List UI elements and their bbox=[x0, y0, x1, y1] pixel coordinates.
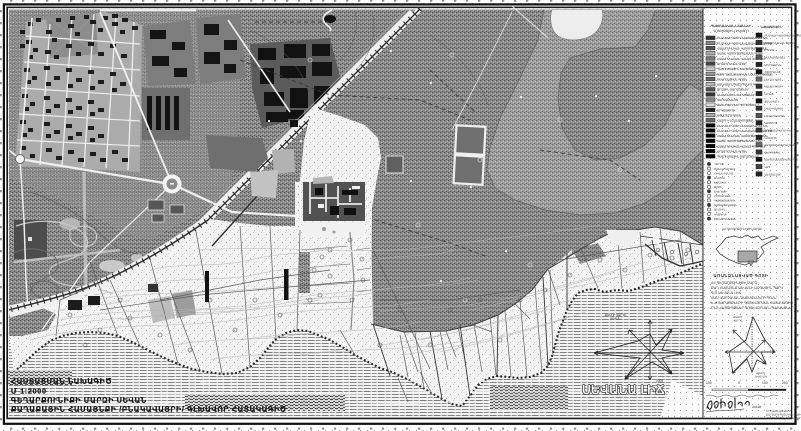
svg-text:ԱՌԱՆՁՆԱՑՎԱԾ ԳՈՏԻ: ԱՌԱՆՁՆԱՑՎԱԾ ԳՈՏԻ bbox=[714, 273, 769, 278]
svg-text:ԳԵՂԱՐՔՈՒՆԻՔԻ ՄԱՐԶԻ ՍԵՎԱՆ: ԳԵՂԱՐՔՈՒՆԻՔԻ ՄԱՐԶԻ ՍԵՎԱՆ bbox=[11, 396, 147, 405]
svg-text:ՈՒԺԸ Մ/Վ: ՈՒԺԸ Մ/Վ bbox=[755, 374, 769, 378]
svg-text:ՔԱՄՈՒ: ՔԱՄՈՒ bbox=[733, 315, 743, 319]
svg-text:2004Թ: 2004Թ bbox=[752, 405, 762, 409]
svg-text:200: 200 bbox=[782, 381, 788, 385]
svg-text:ՓՈՍՏ: ՓՈՍՏ bbox=[714, 185, 722, 189]
svg-text:ՀՅՈՒՐԱՆՈՑ: ՀՅՈՒՐԱՆՈՑ bbox=[765, 70, 782, 74]
svg-text:ԿՈՅՈՒՂԻ: ԿՈՅՈՒՂԻ bbox=[714, 212, 727, 216]
svg-text:ՊԱՅՄԱՆԱԿԱՆ ՆՇԱՆՆԵՐ: ՊԱՅՄԱՆԱԿԱՆ ՆՇԱՆՆԵՐ bbox=[711, 24, 752, 28]
svg-text:ՀԱՍՏԱՏՄԱՆ ՆԱԽԱԳԻԾ: ՀԱՍՏԱՏՄԱՆ ՆԱԽԱԳԻԾ bbox=[11, 377, 112, 386]
svg-text:ՀՀ ԳԵՂԱՐՔՈՒՆԻՔԻ ՄԱՐԶԸ: ՀՀ ԳԵՂԱՐՔՈՒՆԻՔԻ ՄԱՐԶԸ bbox=[722, 227, 762, 231]
svg-text:ԵՐԵՎԱՆՆԱԽԱԳԻԾ: ԵՐԵՎԱՆՆԱԽԱԳԻԾ bbox=[766, 409, 792, 413]
svg-text:ԳԱԶԱՄԱՏԱԿԱՐԱՐՈՒՄ: ԳԱԶԱՄԱՏԱԿԱՐԱՐՈՒՄ bbox=[765, 143, 796, 147]
svg-text:ՄԱՆԿԱՊԱՐՏԵԶ: ՄԱՆԿԱՊԱՐՏԵԶ bbox=[765, 56, 787, 60]
svg-text:ՆԱՎԱՀԱՆԳԻՍՏ: ՆԱՎԱՀԱՆԳԻՍՏ bbox=[765, 114, 786, 118]
svg-text:ՍԵՎԱՆԱ ԼԻՃ: ՍԵՎԱՆԱ ԼԻՃ bbox=[582, 383, 665, 397]
svg-text:ՋՐՄՈՒՂ: ՋՐՄՈՒՂ bbox=[714, 208, 726, 212]
svg-text:ԳՈՅՈՒԹՅՈՒՆ ՈՒՆԵՑՈՂ: ԳՈՅՈՒԹՅՈՒՆ ՈՒՆԵՑՈՂ bbox=[713, 29, 749, 33]
svg-text:ՔԱՄՈՒ: ՔԱՄՈՒ bbox=[756, 371, 766, 375]
svg-text:ԿԱՆԱՉ ԳՈՏԻ: ԿԱՆԱՉ ԳՈՏԻ bbox=[765, 85, 782, 89]
svg-text:ԱՐՏԱԴՐԱԿԱՆ ԳՈՏԻ: ԱՐՏԱԴՐԱԿԱՆ ԳՈՏԻ bbox=[717, 62, 747, 66]
svg-text:ՋԵՌՈՒՑՈՒՄ: ՋԵՌՈՒՑՈՒՄ bbox=[765, 150, 782, 154]
svg-text:ԱՓԱՄԵՐՁ ԳՈՏԻ: ԱՓԱՄԵՐՁ ԳՈՏԻ bbox=[717, 113, 741, 117]
svg-text:ՔԱՂ ՀԱՄԱՅՆՔ ՍԵՎԱՆԻ ԱԶԳԱՅԻՆ ՊԱՐ: ՔԱՂ ՀԱՄԱՅՆՔ ՍԵՎԱՆԻ ԱԶԳԱՅԻՆ ՊԱՐԿ bbox=[711, 286, 783, 290]
svg-text:ԱԿՈՒՄԲ: ԱԿՈՒՄԲ bbox=[714, 176, 725, 180]
svg-text:ՌԵԿՐԵԱՑԻՈՆ ԳՈՏԻ: ՌԵԿՐԵԱՑԻՈՆ ԳՈՏԻ bbox=[717, 77, 746, 81]
svg-text:ՃԱՐՏԱՐԱՊԵՏԱԿԱՆ ԲԱԺԻՆ: ՃԱՐՏԱՐԱՊԵՏԱԿԱՆ ԲԱԺԻՆ bbox=[766, 412, 801, 416]
svg-text:ՊԱՀՈՒՍՏԱՅԻՆ ՏԱՐԱԾՔՆԵՐ: ՊԱՀՈՒՍՏԱՅԻՆ ՏԱՐԱԾՔՆԵՐ bbox=[717, 67, 759, 71]
svg-text:ՀԱՍԱՐԱԿԱԿԱՆ ՕԲՅԵԿՏ: ՀԱՍԱՐԱԿԱԿԱՆ ՕԲՅԵԿՏ bbox=[765, 41, 797, 45]
svg-text:ՆԱԽԱԳԾՎՈՂ: ՆԱԽԱԳԾՎՈՂ bbox=[759, 25, 782, 29]
svg-text:ՀԱՄ ՎԱՐՉԱԿԱՆ ՍԱՀՄԱՆՆԵՐԻ ՊԼԱՆ: ՀԱՄ ՎԱՐՉԱԿԱՆ ՍԱՀՄԱՆՆԵՐԻ ՊԼԱՆ bbox=[711, 296, 777, 300]
svg-text:ԱՐՏԱԴՐԱԿԱՆ ԳՈՏԻ: ԱՐՏԱԴՐԱԿԱՆ ԳՈՏԻ bbox=[717, 150, 747, 154]
svg-text:ՋՐԱՅԻՆ ՏԱՐԱԾՔՆԵՐ: ՋՐԱՅԻՆ ՏԱՐԱԾՔՆԵՐ bbox=[717, 88, 749, 92]
svg-text:ԿՈՅՈՒՂԻ: ԿՈՅՈՒՂԻ bbox=[765, 136, 778, 140]
svg-text:Մ 1:2000: Մ 1:2000 bbox=[11, 387, 47, 396]
svg-text:ՍԱՆԻՏԱՐԱՊԱՇՏՊԱՆԻՉ ԳՈՏԻ: ՍԱՆԻՏԱՐԱՊԱՇՏՊԱՆԻՉ ԳՈՏԻ bbox=[717, 83, 761, 87]
svg-text:ԱՎՏՈԿԱՆԳԱՌ: ԱՎՏՈԿԱՆԳԱՌ bbox=[765, 107, 785, 111]
svg-text:ՀԻՎԱՆԴԱՆՈՑ: ՀԻՎԱՆԴԱՆՈՑ bbox=[714, 171, 734, 175]
svg-text:ԷԼԵԿՏՐԱՄԱՏԱԿԱՐԱՐՈՒՄ: ԷԼԵԿՏՐԱՄԱՏԱԿԱՐԱՐՈՒՄ bbox=[765, 158, 800, 162]
svg-text:ԴՊՐՈՑ: ԴՊՐՈՑ bbox=[714, 162, 725, 166]
svg-text:ԵԿԵՂԵՑԻ: ԵԿԵՂԵՑԻ bbox=[714, 190, 727, 194]
svg-text:ՀՈՒՇԱՐՁԱՆ: ՀՈՒՇԱՐՁԱՆ bbox=[714, 194, 732, 198]
svg-text:ՔԱՂԱՔԱՅԻՆ ՀԱՄԱՅՆՔԻ /ԲՆԱԿԱՎԱՅՐԻ: ՔԱՂԱՔԱՅԻՆ ՀԱՄԱՅՆՔԻ /ԲՆԱԿԱՎԱՅՐԻ/ ԳԼԽԱՎՈՐ … bbox=[11, 405, 287, 414]
svg-text:ԴՊՐՈՑ: ԴՊՐՈՑ bbox=[765, 48, 775, 52]
svg-text:ՊԱՀՈՒՍՏԱՅԻՆ ՏԱՐԱԾՔՆԵՐ: ՊԱՀՈՒՍՏԱՅԻՆ ՏԱՐԱԾՔՆԵՐ bbox=[717, 155, 759, 159]
svg-text:ԸՆԴ ՀԱՏՈՒՅԹՆԵՐ ԳՈՏԵՎՈՐՄԱՆ ՊԱՀԱ: ԸՆԴ ՀԱՏՈՒՅԹՆԵՐ ԳՈՏԵՎՈՐՄԱՆ ՊԱՀԱՆՋՆԵՐ bbox=[711, 306, 794, 310]
svg-text:100: 100 bbox=[706, 381, 712, 385]
svg-text:ՄԱՐԶԱԴԱՇՏ: ՄԱՐԶԱԴԱՇՏ bbox=[765, 77, 782, 81]
svg-text:ԿԱԹՍԱՅԱՏՈՒՆ: ԿԱԹՍԱՅԱՏՈՒՆ bbox=[714, 199, 736, 203]
svg-text:100: 100 bbox=[762, 381, 768, 385]
svg-text:ՀԱՍՏԻՔԱՅԻՆ ՓԱՍՏԱԹՈՒՂԹ: ՀԱՍՏԻՔԱՅԻՆ ՓԱՍՏԱԹՈՒՂԹ bbox=[766, 416, 801, 420]
svg-text:ԱՌՈՂՋԱՐԱՆ: ԱՌՈՂՋԱՐԱՆ bbox=[765, 63, 783, 67]
svg-text:ՎԱՐԴԸ: ՎԱՐԴԸ bbox=[733, 318, 743, 322]
svg-text:ՀՀ ԳԵՂԱՐՔՈՒՆԻՔԻ ՄԱՐԶ: ՀՀ ԳԵՂԱՐՔՈՒՆԻՔԻ ՄԱՐԶ bbox=[711, 281, 758, 285]
svg-text:ԳԱԶԱԼՑԱԿԱՅԱՆ: ԳԱԶԱԼՑԱԿԱՅԱՆ bbox=[714, 203, 738, 207]
svg-text:ԱՆՏԱՌԱՅԻՆ ՏԱՐԱԾՔՆԵՐ: ԱՆՏԱՌԱՅԻՆ ՏԱՐԱԾՔՆԵՐ bbox=[717, 93, 755, 97]
svg-text:ՍԱՀՄԱՆՆԵՐ: ՍԱՀՄԱՆՆԵՐ bbox=[765, 172, 782, 176]
svg-text:ԳԵՐԵԶՄԱՆՈՑ: ԳԵՐԵԶՄԱՆՈՑ bbox=[717, 98, 739, 102]
svg-text:ԽԱՌԸ ԿԱՌՈՒՑԱՊԱՏՄԱՆ ԳՈՏԻ: ԽԱՌԸ ԿԱՌՈՒՑԱՊԱՏՄԱՆ ԳՈՏԻ bbox=[717, 52, 763, 56]
svg-text:0: 0 bbox=[738, 381, 740, 385]
svg-text:ԽԱՆՈՒԹ: ԽԱՆՈՒԹ bbox=[714, 180, 727, 184]
svg-text:ՃԱՆԱՊԱՐՀՆԵՐ ՓՈՂՈՑՆԵՐ: ՃԱՆԱՊԱՐՀՆԵՐ ՓՈՂՈՑՆԵՐ bbox=[717, 103, 757, 107]
svg-text:Ե-Ժ ՏԱՐԱԾՔՆԵՐԻ ԳՈՏԵՎՈՐՄԱՆ ՀԱՏԱ: Ե-Ժ ՏԱՐԱԾՔՆԵՐԻ ԳՈՏԵՎՈՐՄԱՆ ՀԱՏԱԿԱԳԻԾ bbox=[711, 301, 793, 305]
svg-text:ԿԱՊ: ԿԱՊ bbox=[765, 165, 772, 169]
svg-text:ԲՆԱԿԵԼԻ ԿԱՌՈՒՑԱՊԱՏՈՒՄ: ԲՆԱԿԵԼԻ ԿԱՌՈՒՑԱՊԱՏՈՒՄ bbox=[765, 34, 801, 38]
svg-text:ՃԱՆԱՊԱՐՀ: ՃԱՆԱՊԱՐՀ bbox=[765, 99, 780, 103]
svg-text:ԼՈՂԱՓ: ԼՈՂԱՓ bbox=[765, 92, 775, 96]
svg-text:ԷԼԵԿՏՐԱԿԱՅԱՆ: ԷԼԵԿՏՐԱԿԱՅԱՆ bbox=[714, 217, 737, 221]
svg-text:ՄԱՆԿԱՊԱՐՏԵԶ: ՄԱՆԿԱՊԱՐՏԵԶ bbox=[714, 167, 736, 171]
svg-text:ՍԵՎԱՆ: ՍԵՎԱՆ bbox=[610, 317, 621, 321]
svg-text:Գ-Ո ՍԵՎԱՆԱ ԼԻՃ: Գ-Ո ՍԵՎԱՆԱ ԼԻՃ bbox=[711, 291, 741, 295]
svg-text:ԵՐԿԱԹՈՒՂԻ: ԵՐԿԱԹՈՒՂԻ bbox=[717, 108, 735, 112]
svg-text:ՋՐԱՄԱՏԱԿԱՐԱՐՈՒՄ: ՋՐԱՄԱՏԱԿԱՐԱՐՈՒՄ bbox=[765, 129, 793, 133]
svg-text:ԽԱՌԸ ԿԱՌՈՒՑԱՊԱՏՄԱՆ ԳՈՏԻ: ԽԱՌԸ ԿԱՌՈՒՑԱՊԱՏՄԱՆ ԳՈՏԻ bbox=[717, 139, 763, 143]
svg-text:ԿԱՄՈՒՐՋ: ԿԱՄՈՒՐՋ bbox=[765, 121, 779, 125]
